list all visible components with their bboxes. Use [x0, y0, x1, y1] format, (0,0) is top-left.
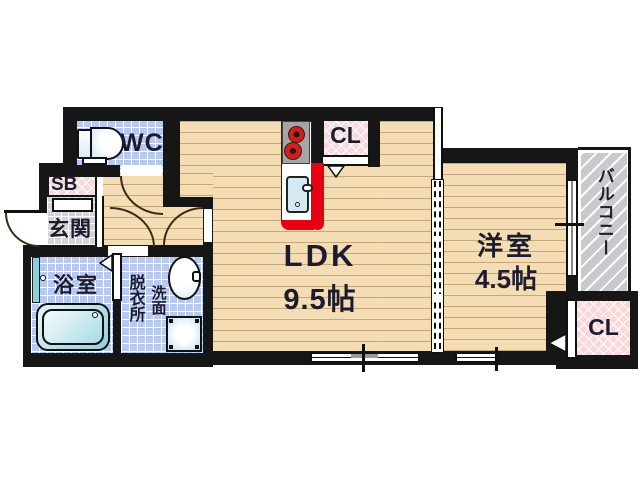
wall-top — [63, 107, 443, 121]
wall-dressing-right — [203, 245, 213, 365]
bathroom-door — [112, 253, 122, 301]
wall-western-top — [443, 148, 578, 163]
toilet-tank-icon — [77, 129, 92, 159]
stove-burner-icon — [284, 142, 302, 160]
kitchen-faucet-icon — [302, 184, 313, 192]
closet-ldk-label: CL — [322, 122, 369, 149]
entrance-step — [52, 198, 93, 212]
western-room-size-label: 4.5帖 — [445, 259, 567, 296]
partition-panel-gap — [432, 294, 443, 299]
ldk-label: LDK — [240, 238, 400, 274]
washing-machine-corner — [169, 345, 173, 349]
partition-sliding-door — [431, 179, 444, 353]
washstand-label: 洗面 — [149, 285, 166, 315]
wall-bottom-left — [23, 353, 213, 367]
window-balcony — [566, 179, 578, 277]
wall-bath-dressing-divider — [113, 298, 121, 354]
shoe-box-label: SB — [51, 174, 77, 196]
wall-balcony-stub-top — [566, 148, 578, 180]
washing-machine-corner — [169, 319, 173, 323]
ldk-size-label: 9.5帖 — [240, 276, 400, 318]
wall-bath-left — [23, 245, 31, 367]
wall-hall-stub — [163, 197, 213, 207]
balcony-outline-right — [628, 147, 631, 294]
floor-plan: WC SB 玄関 浴室 脱衣所 洗面 LDK 9.5帖 洋室 4.5帖 CL C… — [0, 0, 640, 480]
kitchen-sink-icon — [286, 176, 309, 213]
bathroom-door-triangle-icon — [99, 254, 113, 272]
bath-counter-strip — [32, 257, 40, 303]
closet-western-label: CL — [577, 314, 630, 341]
partition-panel-gap — [432, 236, 443, 241]
washing-machine-corner — [195, 319, 199, 323]
closet-ldk-door-triangle-icon — [327, 165, 345, 178]
toilet-bowl-icon — [90, 127, 124, 160]
window-western-center-tick — [495, 347, 498, 371]
wall-wc-right-pillar — [163, 107, 180, 207]
stove-burner-icon — [288, 126, 305, 143]
western-room-label: 洋室 — [445, 226, 567, 263]
bathroom-label: 浴室 — [53, 269, 99, 299]
wall-entrance-left — [39, 163, 47, 213]
washing-machine-corner — [195, 345, 199, 349]
washbasin-handle-icon — [192, 271, 201, 282]
balcony-outline-top — [578, 147, 631, 150]
kitchen-red-edge-bottom — [281, 220, 314, 230]
window-ldk-center-tick — [362, 344, 365, 372]
toilet-base-icon — [82, 157, 107, 165]
entrance-step-edge — [95, 196, 104, 247]
balcony-label: バルコニー — [594, 167, 613, 257]
wc-label: WC — [120, 129, 164, 158]
bath-knob-dot — [40, 275, 46, 281]
wc-door-opening — [121, 165, 162, 176]
bathtub-drain-dot — [92, 312, 98, 318]
closet-western-door — [566, 299, 577, 359]
closet-western-door-triangle-icon — [548, 333, 567, 353]
entrance-label: 玄関 — [48, 213, 92, 243]
dressing-room-label: 脱衣所 — [126, 274, 144, 322]
kitchen-drain-dot — [295, 202, 300, 207]
ldk-door-opening — [204, 209, 212, 242]
entrance-door-swing-arc — [5, 213, 39, 247]
window-western-room — [455, 352, 500, 363]
wall-stub-hollow — [433, 108, 443, 180]
